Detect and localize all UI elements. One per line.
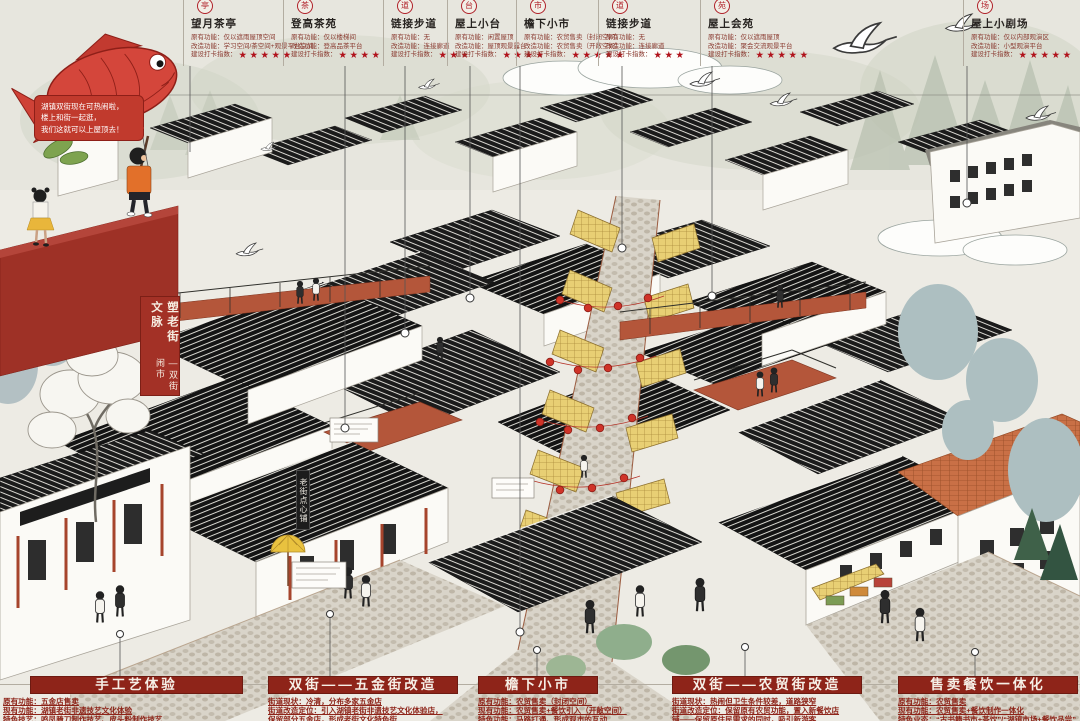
- speech-bubble: 湖镇双街现在可热闹啦， 楼上和街一起逛， 我们这就可以上屋顶去！: [34, 95, 144, 141]
- banner-main-text: 塑老街文脉: [140, 301, 180, 350]
- rating-label: 建设打卡指数：: [291, 51, 337, 60]
- rating-label: 建设打卡指数：: [971, 51, 1017, 60]
- rating-label: 建设打卡指数：: [606, 51, 652, 60]
- street-section[interactable]: 双街——农贸街改造 街道现状：热闹但卫生条件较差，道路狭窄 街道改造定位：保留原…: [672, 676, 862, 721]
- section-line: 现有功能：湖镇老街非遗技艺文化体验: [3, 706, 243, 715]
- section-title-bar: 手工艺体验: [30, 676, 243, 694]
- star-rating: ★★★★: [339, 51, 383, 60]
- section-title-bar: 檐下小市: [478, 676, 598, 694]
- feature-original-function: 原有功能：仅以遮雨屋顶: [708, 34, 811, 43]
- title-banner: 塑老街文脉 —双街闹市: [140, 296, 180, 396]
- section-line: 特色业态：“古书籍书市+茶饮”/“湖镇市场+餐饮品尝”: [898, 715, 1078, 721]
- feature-icon-glyph: 市: [534, 1, 542, 10]
- section-line: 特色技艺：鸣凤腌刀制作技艺、皮头粉制作技艺: [3, 715, 243, 721]
- feature-callout[interactable]: 苑 屋上会苑 原有功能：仅以遮雨屋顶 改造功能：聚会交流观景平台 建设打卡指数：…: [700, 0, 811, 66]
- section-description: 原有功能：五金店售卖 现有功能：湖镇老街非遗技艺文化体验 特色技艺：鸣凤腌刀制作…: [3, 697, 243, 721]
- section-line: 原有功能：农贸售卖: [898, 697, 1078, 706]
- section-title-bar: 售卖餐饮一体化: [898, 676, 1078, 694]
- feature-icon: 苑: [714, 0, 730, 14]
- feature-original-function: 原有功能：无: [606, 34, 687, 43]
- street-section[interactable]: 双街——五金街改造 街道现状：冷清，分布多家五金店 街道改造定位：引入湖镇老街非…: [268, 676, 458, 721]
- street-section[interactable]: 檐下小市 原有功能：农贸售卖（封闭空间） 现有功能：农贸售卖+餐饮引入（开敞空间…: [478, 676, 627, 721]
- speech-line: 我们这就可以上屋顶去！: [41, 124, 137, 135]
- feature-original-function: 原有功能：仅以楼梯间: [291, 34, 383, 43]
- feature-rating: 建设打卡指数： ★★★★★: [971, 51, 1074, 60]
- feature-rating: 建设打卡指数： ★★★: [606, 51, 687, 60]
- section-description: 街道现状：热闹但卫生条件较差，道路狭窄 街道改造定位：保留原有农贸功能，置入新餐…: [672, 697, 862, 721]
- section-title-bar: 双街——五金街改造: [268, 676, 458, 694]
- feature-rating: 建设打卡指数： ★★★★★: [708, 51, 811, 60]
- section-description: 原有功能：农贸售卖（封闭空间） 现有功能：农贸售卖+餐饮引入（开敞空间） 特色功…: [478, 697, 627, 721]
- section-line: 保留部分五金店，形成老街文化特色街: [268, 715, 458, 721]
- feature-icon-glyph: 道: [616, 1, 624, 10]
- feature-icon: 道: [397, 0, 413, 14]
- feature-icon-glyph: 亭: [201, 1, 209, 10]
- shop-sign: 老街点心铺: [296, 470, 310, 530]
- section-line: 铺——保留原住民需求的同时，吸引新游客: [672, 715, 862, 721]
- section-line: 街道现状：冷清，分布多家五金店: [268, 697, 458, 706]
- feature-rating: 建设打卡指数： ★★★★: [291, 51, 383, 60]
- feature-icon-glyph: 台: [465, 1, 473, 10]
- old-street-renovation-poster: 亭 望月茶亭 原有功能：仅以遮雨屋顶空间 改造功能：学习空间/茶空间+观景平台空…: [0, 0, 1080, 721]
- section-line: 现有功能：农贸售卖+餐饮制作一体化: [898, 706, 1078, 715]
- star-rating: ★★★★★: [1019, 51, 1074, 60]
- feature-callout[interactable]: 场 屋上小剧场 原有功能：仅以内部观演区 改造功能：小型观演平台 建设打卡指数：…: [963, 0, 1074, 66]
- section-description: 原有功能：农贸售卖 现有功能：农贸售卖+餐饮制作一体化 特色业态：“古书籍书市+…: [898, 697, 1078, 721]
- feature-original-function: 原有功能：仅以内部观演区: [971, 34, 1074, 43]
- section-title-bar: 双街——农贸街改造: [672, 676, 862, 694]
- section-line: 街道改造定位：保留原有农贸功能，置入新餐饮店: [672, 706, 862, 715]
- feature-icon: 道: [612, 0, 628, 14]
- feature-icon: 台: [461, 0, 477, 14]
- rating-label: 建设打卡指数：: [191, 51, 237, 60]
- feature-title: 屋上小剧场: [971, 16, 1074, 31]
- banner-sub-text: —双街闹市: [140, 358, 180, 396]
- feature-icon-glyph: 场: [981, 1, 989, 10]
- rating-label: 建设打卡指数：: [708, 51, 754, 60]
- rating-label: 建设打卡指数：: [391, 51, 437, 60]
- section-line: 原有功能：五金店售卖: [3, 697, 243, 706]
- section-description: 街道现状：冷清，分布多家五金店 街道改造定位：引入湖镇老街非遗技艺文化体验店， …: [268, 697, 458, 721]
- section-line: 街道现状：热闹但卫生条件较差，道路狭窄: [672, 697, 862, 706]
- street-section[interactable]: 售卖餐饮一体化 原有功能：农贸售卖 现有功能：农贸售卖+餐饮制作一体化 特色业态…: [898, 676, 1078, 721]
- feature-icon: 场: [977, 0, 993, 14]
- rating-label: 建设打卡指数：: [455, 51, 501, 60]
- feature-callout[interactable]: 道 链接步道 原有功能：无 改造功能：连接廊道 建设打卡指数： ★★★: [598, 0, 687, 66]
- section-line: 特色功能：马路打通、形成观市的互动: [478, 715, 627, 721]
- section-line: 街道改造定位：引入湖镇老街非遗技艺文化体验店，: [268, 706, 458, 715]
- feature-icon-glyph: 苑: [718, 1, 726, 10]
- speech-line: 湖镇双街现在可热闹啦，: [41, 101, 137, 112]
- feature-icon: 市: [530, 0, 546, 14]
- feature-icon-glyph: 茶: [301, 1, 309, 10]
- feature-icon: 亭: [197, 0, 213, 14]
- feature-title: 屋上会苑: [708, 16, 811, 31]
- street-section[interactable]: 手工艺体验 原有功能：五金店售卖 现有功能：湖镇老街非遗技艺文化体验 特色技艺：…: [3, 676, 243, 721]
- feature-icon: 茶: [297, 0, 313, 14]
- star-rating: ★★★★★: [756, 51, 811, 60]
- feature-callout[interactable]: 茶 登高茶苑 原有功能：仅以楼梯间 改造功能：登高品茶平台 建设打卡指数： ★★…: [283, 0, 383, 66]
- feature-title: 登高茶苑: [291, 16, 383, 31]
- feature-icon-glyph: 道: [401, 1, 409, 10]
- section-line: 原有功能：农贸售卖（封闭空间）: [478, 697, 627, 706]
- section-line: 现有功能：农贸售卖+餐饮引入（开敞空间）: [478, 706, 627, 715]
- speech-line: 楼上和街一起逛，: [41, 112, 137, 123]
- rating-label: 建设打卡指数：: [524, 51, 570, 60]
- feature-title: 链接步道: [606, 16, 687, 31]
- star-rating: ★★★: [654, 51, 687, 60]
